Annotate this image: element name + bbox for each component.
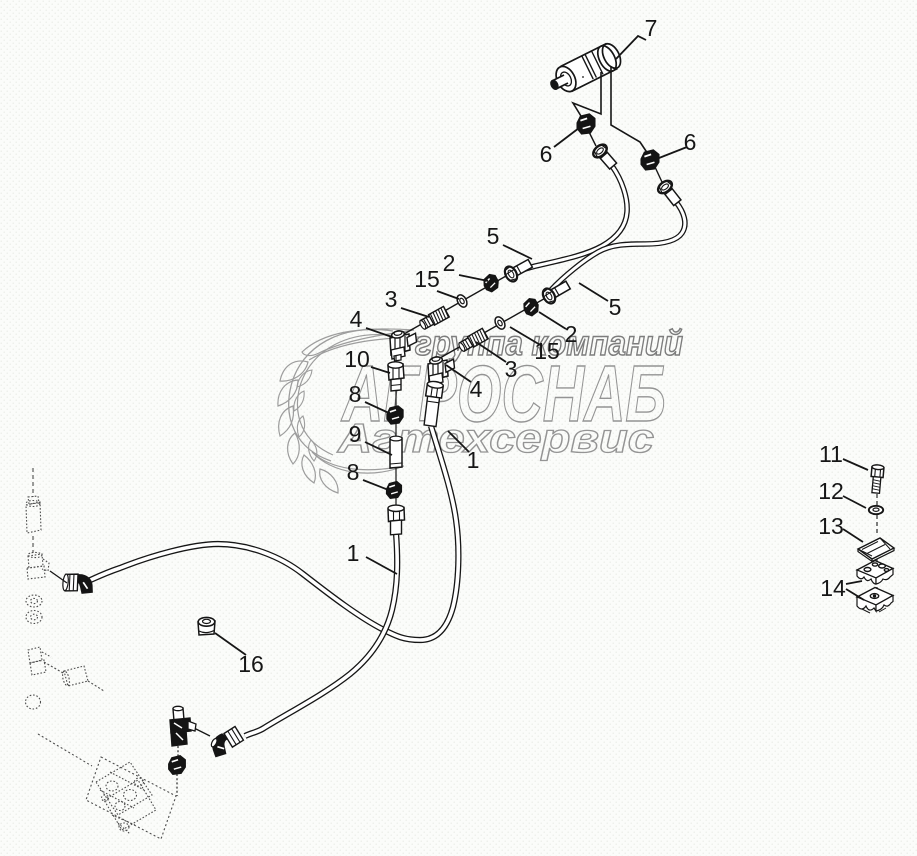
svg-text:6: 6 xyxy=(684,129,697,155)
svg-text:5: 5 xyxy=(487,223,500,249)
svg-text:12: 12 xyxy=(818,478,844,504)
svg-text:9: 9 xyxy=(349,421,362,447)
svg-text:11: 11 xyxy=(819,441,843,467)
svg-text:2: 2 xyxy=(443,250,456,276)
svg-text:13: 13 xyxy=(818,513,844,539)
svg-text:15: 15 xyxy=(414,266,440,292)
svg-text:6: 6 xyxy=(540,141,553,167)
svg-text:4: 4 xyxy=(350,306,363,332)
svg-text:1: 1 xyxy=(347,540,360,566)
svg-text:16: 16 xyxy=(238,651,264,677)
svg-text:3: 3 xyxy=(385,286,398,312)
svg-text:7: 7 xyxy=(645,15,658,41)
svg-text:2: 2 xyxy=(565,321,578,347)
svg-text:14: 14 xyxy=(820,575,846,601)
svg-text:15: 15 xyxy=(534,338,560,364)
svg-text:1: 1 xyxy=(467,447,480,473)
svg-text:4: 4 xyxy=(470,376,483,402)
svg-text:3: 3 xyxy=(505,356,518,382)
svg-text:8: 8 xyxy=(347,459,360,485)
svg-text:Агтехсервис: Агтехсервис xyxy=(337,415,654,461)
svg-text:5: 5 xyxy=(609,294,622,320)
svg-text:8: 8 xyxy=(349,381,362,407)
svg-text:10: 10 xyxy=(344,346,370,372)
